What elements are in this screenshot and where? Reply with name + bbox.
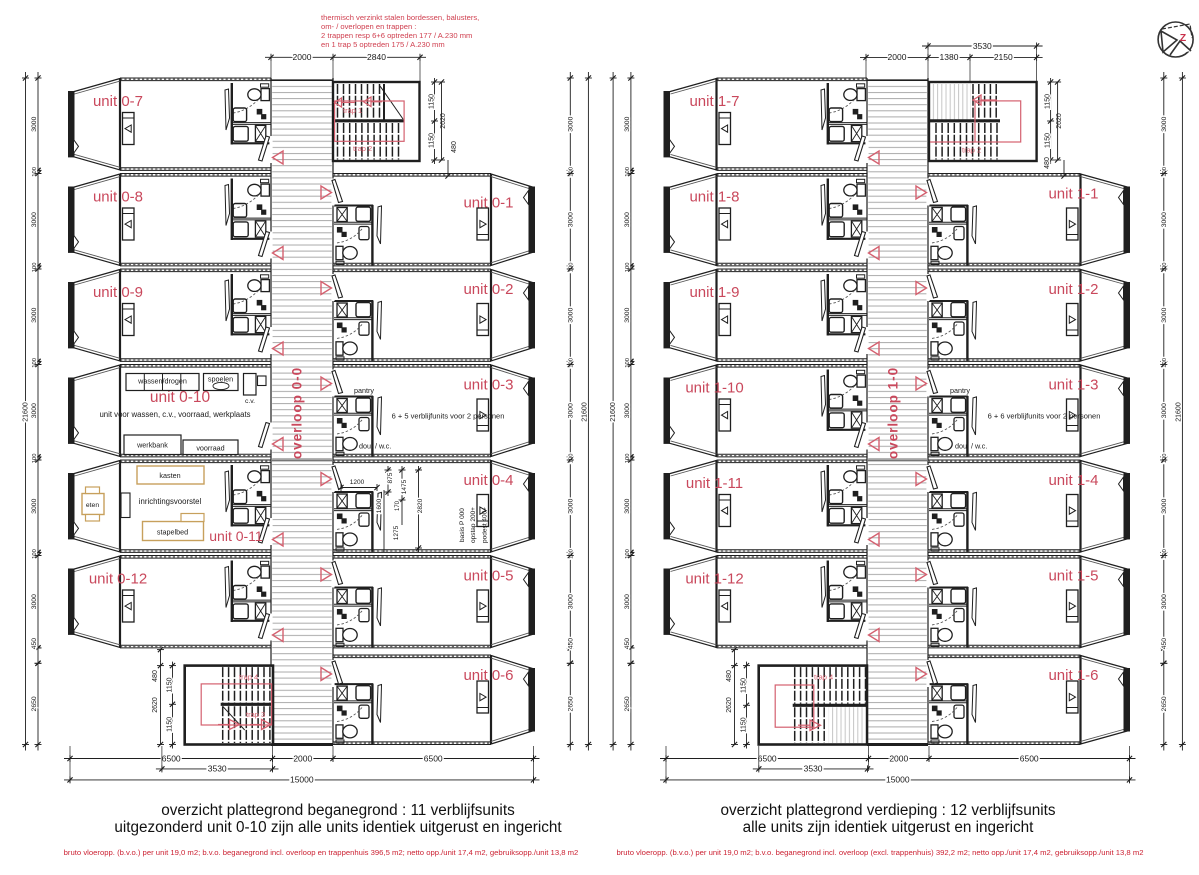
svg-text:unit 1-7: unit 1-7 <box>689 93 739 110</box>
svg-text:unit 1-3: unit 1-3 <box>1048 377 1098 394</box>
svg-text:trap 2: trap 2 <box>353 144 372 153</box>
svg-text:unit 0-8: unit 0-8 <box>93 189 143 206</box>
svg-text:3000: 3000 <box>624 212 631 227</box>
svg-text:3000: 3000 <box>624 116 631 131</box>
svg-text:2 trappen resp 6+6 optreden 17: 2 trappen resp 6+6 optreden 177 / A.230 … <box>321 31 472 40</box>
svg-text:2000: 2000 <box>889 753 908 763</box>
svg-text:21600: 21600 <box>23 402 30 422</box>
svg-text:15000: 15000 <box>886 775 910 785</box>
svg-text:eten: eten <box>86 502 99 509</box>
svg-text:450: 450 <box>31 638 38 650</box>
svg-text:alle units zijn identiek uitge: alle units zijn identiek uitgerust en in… <box>743 819 1035 836</box>
svg-text:dou. / w.c.: dou. / w.c. <box>955 442 987 451</box>
svg-text:unit 0-9: unit 0-9 <box>93 284 143 301</box>
svg-text:unit 1-8: unit 1-8 <box>689 189 739 206</box>
svg-text:100: 100 <box>32 263 38 273</box>
svg-text:3000: 3000 <box>1161 403 1168 418</box>
svg-text:3000: 3000 <box>624 403 631 418</box>
svg-text:1150: 1150 <box>429 133 436 148</box>
svg-text:1150: 1150 <box>167 717 174 732</box>
svg-text:2650: 2650 <box>1161 696 1168 711</box>
svg-text:21600: 21600 <box>610 402 617 422</box>
svg-text:480: 480 <box>152 670 159 682</box>
svg-text:480: 480 <box>451 141 458 153</box>
svg-text:1150: 1150 <box>741 678 748 693</box>
svg-text:pantry: pantry <box>950 386 970 395</box>
svg-text:3000: 3000 <box>31 498 38 513</box>
svg-text:om- / overlopen en trappen :: om- / overlopen en trappen : <box>321 22 416 31</box>
svg-text:wassen/drogen: wassen/drogen <box>137 377 187 386</box>
svg-text:Z: Z <box>1180 32 1187 44</box>
svg-text:2650: 2650 <box>624 696 631 711</box>
svg-text:21600: 21600 <box>1175 402 1182 422</box>
svg-text:450: 450 <box>567 638 574 650</box>
svg-text:1380: 1380 <box>940 52 959 62</box>
svg-text:3000: 3000 <box>1161 116 1168 131</box>
svg-text:3530: 3530 <box>973 41 992 51</box>
svg-text:overloop 0-0: overloop 0-0 <box>290 367 305 459</box>
svg-text:unit 1-9: unit 1-9 <box>689 284 739 301</box>
svg-text:2650: 2650 <box>31 696 38 711</box>
svg-text:thermisch verzinkt stalen bord: thermisch verzinkt stalen bordessen, bal… <box>321 13 479 22</box>
svg-text:3000: 3000 <box>624 498 631 513</box>
svg-text:480: 480 <box>726 670 733 682</box>
svg-text:2150: 2150 <box>994 52 1013 62</box>
svg-text:unit 0-4: unit 0-4 <box>463 472 513 489</box>
svg-text:spoelen: spoelen <box>208 375 233 384</box>
svg-text:2820: 2820 <box>417 498 424 513</box>
svg-text:3000: 3000 <box>567 403 574 418</box>
svg-text:unit 1-10: unit 1-10 <box>685 380 743 397</box>
svg-text:2840: 2840 <box>367 52 386 62</box>
svg-text:480: 480 <box>1044 157 1051 169</box>
svg-text:podest 400+: podest 400+ <box>482 507 489 543</box>
svg-text:100: 100 <box>32 454 38 464</box>
svg-text:100: 100 <box>32 549 38 559</box>
svg-text:3000: 3000 <box>31 594 38 609</box>
svg-text:1150: 1150 <box>1045 133 1052 148</box>
svg-text:6500: 6500 <box>758 753 777 763</box>
svg-text:unit 0-3: unit 0-3 <box>463 377 513 394</box>
svg-text:3000: 3000 <box>31 307 38 322</box>
svg-text:overloop 1-0: overloop 1-0 <box>886 367 901 459</box>
svg-text:unit 1-1: unit 1-1 <box>1048 186 1098 203</box>
svg-text:3000: 3000 <box>1161 307 1168 322</box>
svg-text:en 1 trap 5 optreden 175 / A.2: en 1 trap 5 optreden 175 / A.230 mm <box>321 40 445 49</box>
svg-text:dou. / w.c.: dou. / w.c. <box>359 442 391 451</box>
svg-text:2000: 2000 <box>888 52 907 62</box>
svg-text:100: 100 <box>625 358 631 368</box>
svg-text:3000: 3000 <box>31 212 38 227</box>
svg-text:3530: 3530 <box>208 764 227 774</box>
svg-text:unit 1-2: unit 1-2 <box>1048 281 1098 298</box>
svg-text:1600: 1600 <box>376 498 383 513</box>
svg-text:1475: 1475 <box>401 479 408 494</box>
svg-text:unit 0-5: unit 0-5 <box>463 568 513 585</box>
svg-text:3000: 3000 <box>567 116 574 131</box>
svg-text:trap 1: trap 1 <box>343 106 362 115</box>
svg-text:2620: 2620 <box>726 697 733 713</box>
svg-text:trap 3: trap 3 <box>246 710 265 719</box>
svg-text:3000: 3000 <box>1161 212 1168 227</box>
svg-text:unit 0-7: unit 0-7 <box>93 93 143 110</box>
svg-text:100: 100 <box>625 167 631 177</box>
svg-text:6500: 6500 <box>162 753 181 763</box>
svg-text:6 + 5 verblijfunits voor 2 per: 6 + 5 verblijfunits voor 2 personen <box>392 412 505 421</box>
svg-text:450: 450 <box>1161 638 1168 650</box>
svg-text:2000: 2000 <box>293 753 312 763</box>
svg-text:trap 4: trap 4 <box>239 673 258 682</box>
svg-text:1200: 1200 <box>350 479 365 486</box>
svg-text:uitgezonderd unit 0-10 zijn al: uitgezonderd unit 0-10 zijn alle units i… <box>114 819 562 836</box>
svg-text:unit 1-5: unit 1-5 <box>1048 568 1098 585</box>
svg-text:1150: 1150 <box>167 677 174 692</box>
svg-text:100: 100 <box>625 263 631 273</box>
svg-text:170: 170 <box>395 500 401 511</box>
svg-text:6500: 6500 <box>424 753 443 763</box>
svg-text:3000: 3000 <box>567 594 574 609</box>
svg-text:3000: 3000 <box>624 594 631 609</box>
svg-text:3000: 3000 <box>624 307 631 322</box>
svg-text:450: 450 <box>624 638 631 650</box>
svg-text:3000: 3000 <box>567 498 574 513</box>
svg-text:stapelbed: stapelbed <box>157 528 188 537</box>
svg-text:100: 100 <box>32 167 38 177</box>
svg-text:overzicht plattegrond verdiepi: overzicht plattegrond verdieping : 12 ve… <box>720 802 1055 819</box>
svg-text:voorraad: voorraad <box>196 444 224 453</box>
svg-text:3000: 3000 <box>31 116 38 131</box>
svg-text:100: 100 <box>625 549 631 559</box>
svg-text:3000: 3000 <box>1161 594 1168 609</box>
svg-text:1150: 1150 <box>429 94 436 109</box>
svg-text:1150: 1150 <box>741 717 748 732</box>
svg-text:2620: 2620 <box>1056 113 1063 129</box>
svg-text:875: 875 <box>387 472 394 483</box>
svg-text:bruto vloeropp. (b.v.o.) per u: bruto vloeropp. (b.v.o.) per unit 19,0 m… <box>616 848 1143 857</box>
svg-text:100: 100 <box>32 358 38 368</box>
svg-text:21600: 21600 <box>581 402 588 422</box>
svg-text:1275: 1275 <box>393 525 400 540</box>
svg-text:unit 0-12: unit 0-12 <box>89 571 147 588</box>
svg-text:2000: 2000 <box>293 52 312 62</box>
svg-text:1150: 1150 <box>1045 94 1052 109</box>
svg-text:unit 1-11: unit 1-11 <box>686 475 743 492</box>
svg-text:15000: 15000 <box>290 775 314 785</box>
svg-text:3000: 3000 <box>567 307 574 322</box>
svg-text:c.v.: c.v. <box>245 398 255 405</box>
svg-text:bruto vloeropp. (b.v.o.) per u: bruto vloeropp. (b.v.o.) per unit 19,0 m… <box>64 848 579 857</box>
svg-text:inrichtingsvoorstel: inrichtingsvoorstel <box>139 497 202 506</box>
svg-text:trap 4: trap 4 <box>814 673 833 682</box>
svg-text:overzicht plattegrond beganegr: overzicht plattegrond beganegrond : 11 v… <box>161 802 515 819</box>
svg-text:3000: 3000 <box>31 403 38 418</box>
svg-text:kasten: kasten <box>159 471 180 480</box>
svg-text:unit 1-4: unit 1-4 <box>1048 472 1098 489</box>
svg-text:unit 0-2: unit 0-2 <box>463 281 513 298</box>
svg-text:3000: 3000 <box>1161 498 1168 513</box>
svg-text:unit 1-12: unit 1-12 <box>685 571 743 588</box>
svg-text:6500: 6500 <box>1020 753 1039 763</box>
svg-text:opstap 200+: opstap 200+ <box>470 507 477 543</box>
svg-text:unit voor wassen, c.v., voorr: unit voor wassen, c.v., voorraad, werkpl… <box>99 410 250 419</box>
svg-text:2620: 2620 <box>152 697 159 713</box>
svg-text:pantry: pantry <box>354 386 374 395</box>
svg-text:2650: 2650 <box>567 696 574 711</box>
svg-text:unit 0-10: unit 0-10 <box>150 389 211 406</box>
svg-text:trap 2: trap 2 <box>962 146 981 155</box>
svg-text:3530: 3530 <box>804 764 823 774</box>
svg-text:6 + 6 verblijfunits voor 2 per: 6 + 6 verblijfunits voor 2 personen <box>988 412 1101 421</box>
svg-text:basis P 000: basis P 000 <box>459 508 466 542</box>
svg-text:werkbank: werkbank <box>136 441 168 450</box>
svg-text:3000: 3000 <box>567 212 574 227</box>
svg-text:unit 0-11: unit 0-11 <box>209 528 263 544</box>
svg-text:100: 100 <box>625 454 631 464</box>
